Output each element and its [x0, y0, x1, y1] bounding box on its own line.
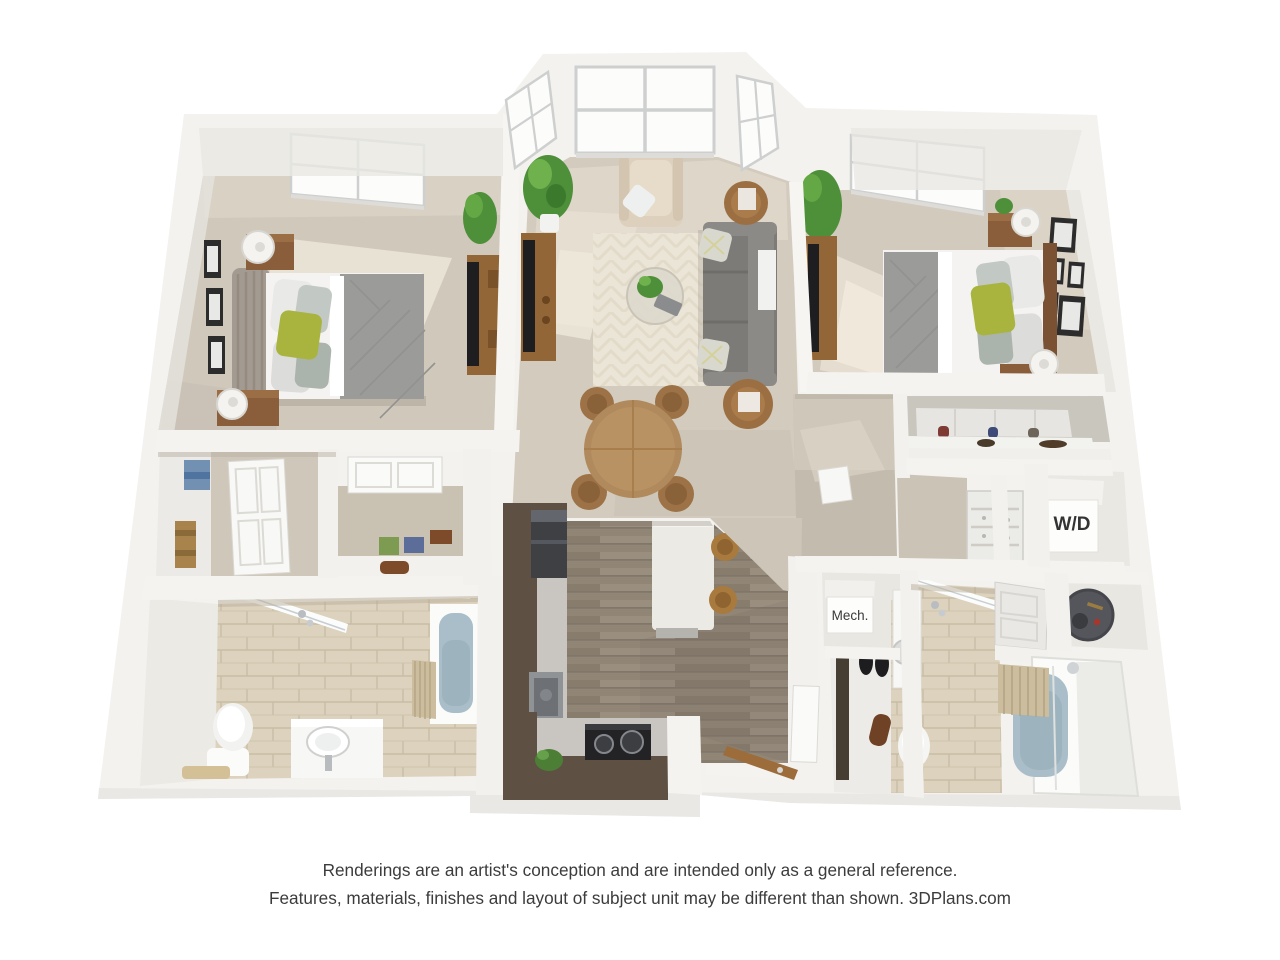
svg-text:W/D: W/D [1054, 514, 1091, 535]
svg-text:Mech.: Mech. [832, 608, 869, 623]
